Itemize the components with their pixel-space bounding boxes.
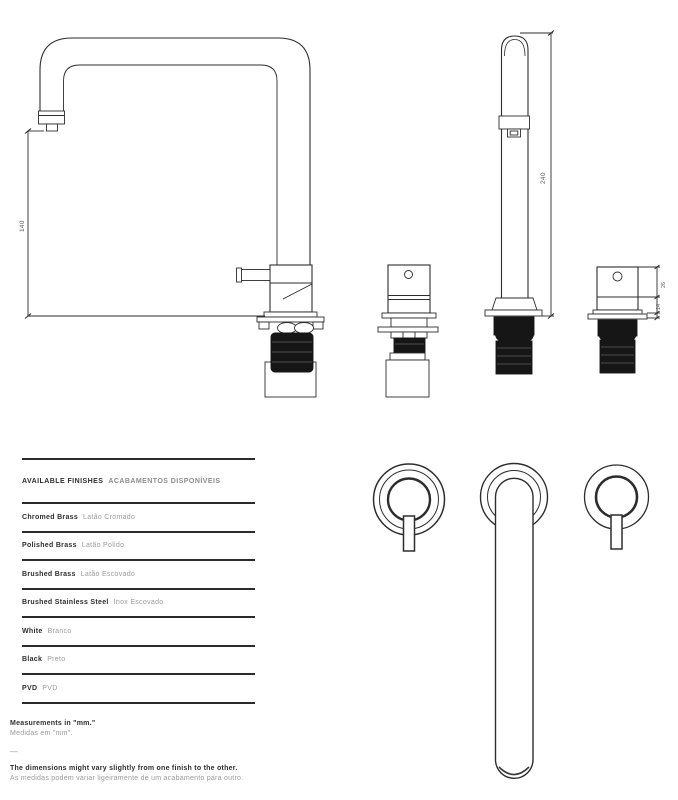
finish-row-polished-brass: Polished Brass Latão Polido bbox=[22, 533, 255, 562]
dim-label-140: 140 bbox=[19, 220, 26, 232]
measurements-note-pt: Medidas em "mm". bbox=[10, 729, 350, 739]
finish-name-en: Brushed Stainless Steel bbox=[22, 599, 109, 606]
finish-name-pt: PVD bbox=[42, 685, 57, 692]
footnotes: Measurements in "mm." Medidas em "mm". —… bbox=[10, 719, 350, 784]
dim-label-26: 26 bbox=[661, 282, 667, 288]
finish-name-en: Chromed Brass bbox=[22, 514, 78, 521]
finish-row-white: White Branco bbox=[22, 618, 255, 647]
finishes-table: AVAILABLE FINISHES ACABAMENTOS DISPONÍVE… bbox=[22, 458, 255, 704]
finish-name-pt: Branco bbox=[48, 628, 72, 635]
spout-top-view bbox=[481, 464, 548, 779]
valve-top-view-right bbox=[585, 465, 649, 549]
finish-name-en: Black bbox=[22, 656, 42, 663]
finish-name-en: Brushed Brass bbox=[22, 571, 76, 578]
measurements-note-en: Measurements in "mm." bbox=[10, 719, 350, 729]
finish-name-en: White bbox=[22, 628, 43, 635]
dimension-total-height: 240 bbox=[520, 31, 554, 319]
finishes-header-en: AVAILABLE FINISHES bbox=[22, 478, 103, 485]
faucet-front-view: 240 bbox=[485, 31, 554, 375]
faucet-side-view: 140 bbox=[19, 38, 324, 397]
finish-row-brushed-stainless-steel: Brushed Stainless Steel Inox Escovado bbox=[22, 590, 255, 619]
disclaimer-note-en: The dimensions might vary slightly from … bbox=[10, 764, 350, 774]
dimension-spout-height: 140 bbox=[19, 129, 265, 319]
finish-name-pt: Latão Cromado bbox=[83, 514, 135, 521]
finish-row-chromed-brass: Chromed Brass Latão Cromado bbox=[22, 504, 255, 533]
finish-name-pt: Latão Escovado bbox=[81, 571, 135, 578]
finish-name-pt: Latão Polido bbox=[82, 542, 125, 549]
valve-front-view: 26 14 bbox=[588, 265, 667, 373]
finishes-header: AVAILABLE FINISHES ACABAMENTOS DISPONÍVE… bbox=[22, 460, 255, 504]
finish-row-brushed-brass: Brushed Brass Latão Escovado bbox=[22, 561, 255, 590]
notes-separator: — bbox=[10, 747, 350, 757]
finish-name-en: PVD bbox=[22, 685, 37, 692]
faucet-top-views bbox=[360, 440, 678, 800]
disclaimer-note-pt: As medidas podem variar ligeiramente de … bbox=[10, 774, 350, 784]
finish-name-pt: Preto bbox=[47, 656, 65, 663]
finish-row-black: Black Preto bbox=[22, 647, 255, 676]
faucet-technical-drawing: 140 bbox=[0, 0, 678, 440]
catalog-page: { "drawing": { "dims": { "spout_height":… bbox=[0, 0, 678, 800]
finish-name-pt: Inox Escovado bbox=[114, 599, 164, 606]
finishes-header-pt: ACABAMENTOS DISPONÍVEIS bbox=[108, 478, 220, 485]
dim-label-240: 240 bbox=[540, 172, 547, 184]
finish-row-pvd: PVD PVD bbox=[22, 675, 255, 704]
dim-label-14: 14 bbox=[656, 304, 662, 310]
finish-name-en: Polished Brass bbox=[22, 542, 77, 549]
valve-top-view-left bbox=[374, 464, 445, 551]
valve-side-view bbox=[378, 265, 438, 397]
